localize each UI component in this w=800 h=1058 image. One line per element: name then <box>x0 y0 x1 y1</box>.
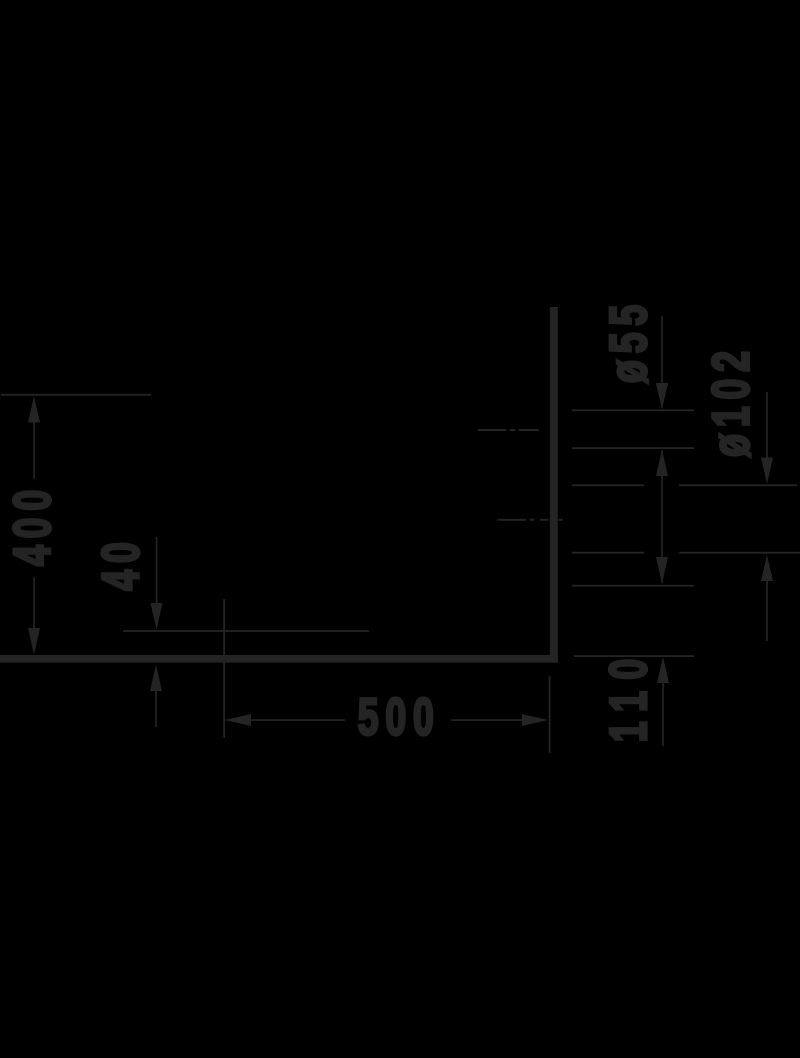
svg-text:ø102: ø102 <box>701 344 760 457</box>
svg-text:ø55: ø55 <box>599 298 658 383</box>
svg-text:110: 110 <box>599 647 658 742</box>
svg-text:400: 400 <box>3 483 62 566</box>
svg-text:500: 500 <box>358 687 441 746</box>
svg-text:40: 40 <box>91 535 150 590</box>
